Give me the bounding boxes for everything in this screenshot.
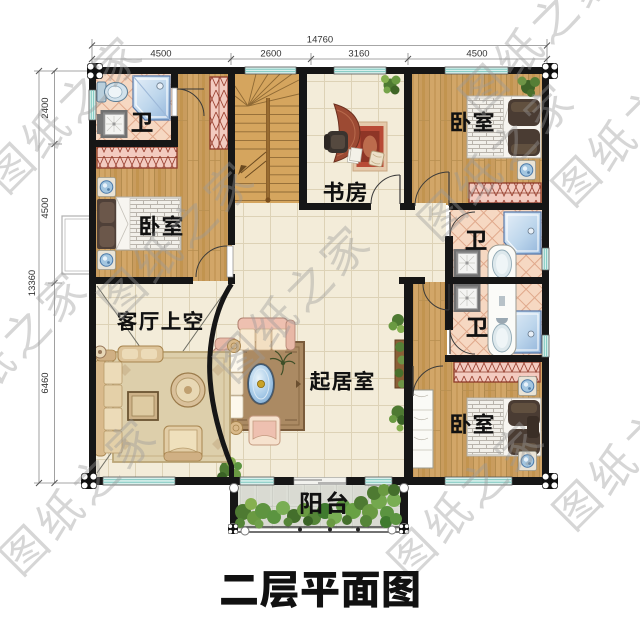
svg-text:6460: 6460 [40,372,51,393]
svg-text:3160: 3160 [348,49,369,60]
svg-text:13360: 13360 [27,270,38,296]
svg-text:4500: 4500 [466,49,487,60]
svg-text:2600: 2600 [260,49,281,60]
svg-text:4500: 4500 [40,197,51,218]
svg-text:14760: 14760 [307,35,333,46]
svg-text:4500: 4500 [150,49,171,60]
